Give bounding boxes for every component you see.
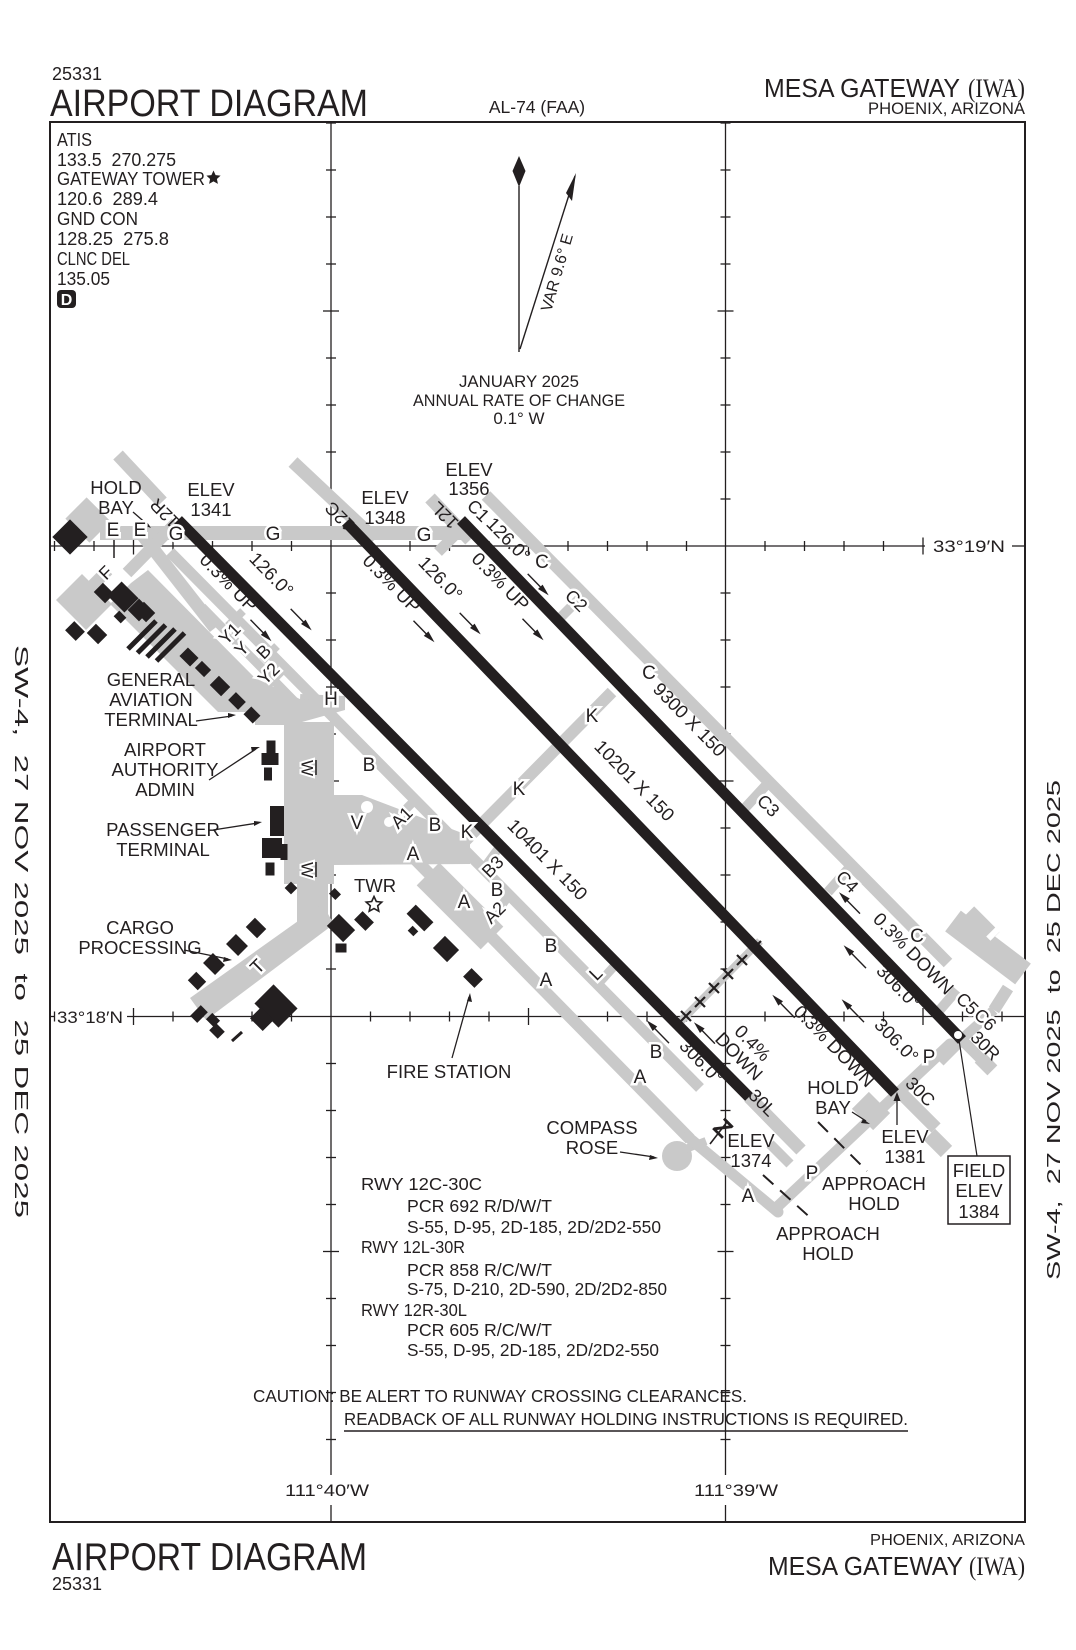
svg-text:H: H (324, 689, 338, 710)
svg-text:ELEV: ELEV (445, 459, 493, 480)
svg-text:B: B (491, 880, 504, 901)
svg-text:C: C (535, 552, 549, 573)
svg-text:B: B (363, 755, 376, 776)
svg-text:PHOENIX, ARIZONA: PHOENIX, ARIZONA (868, 100, 1025, 118)
svg-text:25331: 25331 (52, 64, 102, 84)
svg-text:AIRPORT: AIRPORT (124, 739, 206, 760)
svg-text:ANNUAL RATE OF CHANGE: ANNUAL RATE OF CHANGE (413, 391, 625, 410)
svg-text:D: D (61, 292, 73, 309)
svg-text:BAY: BAY (98, 497, 134, 518)
svg-text:HOLD: HOLD (848, 1193, 899, 1214)
svg-text:APPROACH: APPROACH (776, 1223, 880, 1244)
svg-text:ELEV: ELEV (955, 1180, 1003, 1201)
svg-text:BAY: BAY (815, 1097, 851, 1118)
svg-text:AIRPORT DIAGRAM: AIRPORT DIAGRAM (50, 83, 368, 125)
svg-text:A: A (742, 1186, 755, 1207)
svg-text:A: A (634, 1067, 647, 1088)
svg-text:K: K (513, 779, 526, 800)
svg-text:RWY 12C-30C: RWY 12C-30C (361, 1174, 482, 1194)
svg-text:A: A (458, 892, 471, 913)
svg-text:S-55, D-95, 2D-185, 2D/2D2-550: S-55, D-95, 2D-185, 2D/2D2-550 (407, 1340, 659, 1360)
svg-text:W: W (298, 862, 317, 878)
svg-text:CAUTION: BE ALERT TO RUNWAY CR: CAUTION: BE ALERT TO RUNWAY CROSSING CLE… (253, 1386, 747, 1406)
svg-text:K: K (461, 822, 474, 843)
svg-text:1348: 1348 (364, 507, 405, 528)
svg-text:K: K (586, 706, 599, 727)
svg-text:MESA GATEWAY: MESA GATEWAY (768, 1551, 963, 1581)
svg-text:APPROACH: APPROACH (822, 1173, 926, 1194)
svg-text:B: B (429, 815, 442, 836)
svg-text:111°39′W: 111°39′W (694, 1482, 779, 1500)
svg-text:G: G (266, 524, 281, 545)
svg-text:SW-4, 27 NOV 2025 to 25 DEC: SW-4, 27 NOV 2025 to 25 DEC 2025 (1044, 780, 1064, 1280)
svg-text:ELEV: ELEV (727, 1130, 775, 1151)
svg-text:AVIATION: AVIATION (109, 689, 193, 710)
svg-text:ELEV: ELEV (187, 479, 235, 500)
svg-text:COMPASS: COMPASS (546, 1117, 637, 1138)
svg-text:TERMINAL: TERMINAL (104, 709, 198, 730)
svg-text:S-55, D-95, 2D-185, 2D/2D2-550: S-55, D-95, 2D-185, 2D/2D2-550 (407, 1217, 661, 1237)
svg-text:AIRPORT DIAGRAM: AIRPORT DIAGRAM (52, 1536, 367, 1579)
svg-text:G: G (169, 524, 184, 545)
svg-text:C: C (910, 926, 924, 947)
svg-text:33°19′N: 33°19′N (933, 538, 1005, 556)
svg-text:P: P (923, 1047, 936, 1068)
svg-text:RWY 12L-30R: RWY 12L-30R (361, 1237, 465, 1257)
svg-text:GND CON: GND CON (57, 208, 138, 229)
svg-text:135.05: 135.05 (57, 268, 110, 289)
svg-text:GENERAL: GENERAL (107, 669, 195, 690)
svg-text:B: B (650, 1042, 663, 1063)
svg-text:(IWA): (IWA) (968, 74, 1025, 103)
svg-text:GATEWAY TOWER: GATEWAY TOWER (57, 168, 205, 189)
svg-text:128.25 275.8: 128.25 275.8 (57, 228, 169, 249)
svg-text:S-75, D-210, 2D-590, 2D/2D2-85: S-75, D-210, 2D-590, 2D/2D2-850 (407, 1279, 667, 1299)
svg-text:JANUARY 2025: JANUARY 2025 (459, 372, 579, 391)
svg-text:AL-74 (FAA): AL-74 (FAA) (489, 97, 585, 117)
svg-text:ATIS: ATIS (57, 129, 92, 150)
svg-text:W: W (298, 760, 317, 776)
svg-text:FIRE STATION: FIRE STATION (387, 1061, 512, 1082)
svg-text:HOLD: HOLD (802, 1243, 853, 1264)
svg-text:ELEV: ELEV (881, 1126, 929, 1147)
svg-text:ROSE: ROSE (566, 1137, 618, 1158)
svg-text:SW-4, 27 NOV 2025 to 25 DEC: SW-4, 27 NOV 2025 to 25 DEC 2025 (11, 645, 31, 1218)
svg-text:A: A (540, 970, 553, 991)
svg-text:1341: 1341 (190, 499, 231, 520)
svg-text:CLNC DEL: CLNC DEL (57, 248, 130, 269)
svg-text:PHOENIX, ARIZONA: PHOENIX, ARIZONA (870, 1532, 1025, 1549)
svg-text:TWR: TWR (354, 875, 396, 896)
svg-text:G: G (417, 525, 432, 546)
svg-text:0.1° W: 0.1° W (493, 409, 544, 428)
svg-text:33°18′N: 33°18′N (57, 1009, 123, 1027)
svg-text:E: E (107, 520, 120, 541)
svg-text:TERMINAL: TERMINAL (116, 839, 210, 860)
svg-text:133.5 270.275: 133.5 270.275 (57, 149, 176, 170)
svg-text:V: V (351, 813, 364, 834)
svg-text:25331: 25331 (52, 1574, 102, 1594)
svg-text:PCR 858 R/C/W/T: PCR 858 R/C/W/T (407, 1260, 552, 1280)
svg-text:CARGO: CARGO (106, 917, 174, 938)
svg-text:B: B (545, 936, 558, 957)
svg-text:1374: 1374 (730, 1150, 771, 1171)
svg-text:(IWA): (IWA) (969, 1552, 1025, 1581)
svg-text:READBACK OF ALL RUNWAY HOLDING: READBACK OF ALL RUNWAY HOLDING INSTRUCTI… (344, 1409, 908, 1429)
svg-text:HOLD: HOLD (807, 1077, 858, 1098)
svg-text:120.6 289.4: 120.6 289.4 (57, 188, 158, 209)
svg-text:MESA GATEWAY: MESA GATEWAY (764, 73, 960, 103)
svg-text:C: C (642, 663, 656, 684)
svg-text:111°40′W: 111°40′W (285, 1482, 370, 1500)
svg-text:PCR 605 R/C/W/T: PCR 605 R/C/W/T (407, 1320, 552, 1340)
svg-text:PASSENGER: PASSENGER (106, 819, 220, 840)
svg-text:FIELD: FIELD (953, 1160, 1005, 1181)
svg-text:ADMIN: ADMIN (135, 779, 195, 800)
svg-text:1381: 1381 (884, 1146, 925, 1167)
svg-text:PROCESSING: PROCESSING (78, 937, 201, 958)
svg-text:AUTHORITY: AUTHORITY (112, 759, 219, 780)
svg-text:HOLD: HOLD (90, 477, 141, 498)
svg-text:1384: 1384 (958, 1201, 999, 1222)
svg-text:RWY 12R-30L: RWY 12R-30L (361, 1300, 467, 1320)
svg-text:A: A (407, 844, 420, 865)
svg-text:E: E (134, 520, 147, 541)
svg-text:1356: 1356 (448, 478, 489, 499)
svg-text:P: P (806, 1163, 819, 1184)
svg-text:PCR 692 R/D/W/T: PCR 692 R/D/W/T (407, 1196, 552, 1216)
svg-text:ELEV: ELEV (361, 487, 409, 508)
